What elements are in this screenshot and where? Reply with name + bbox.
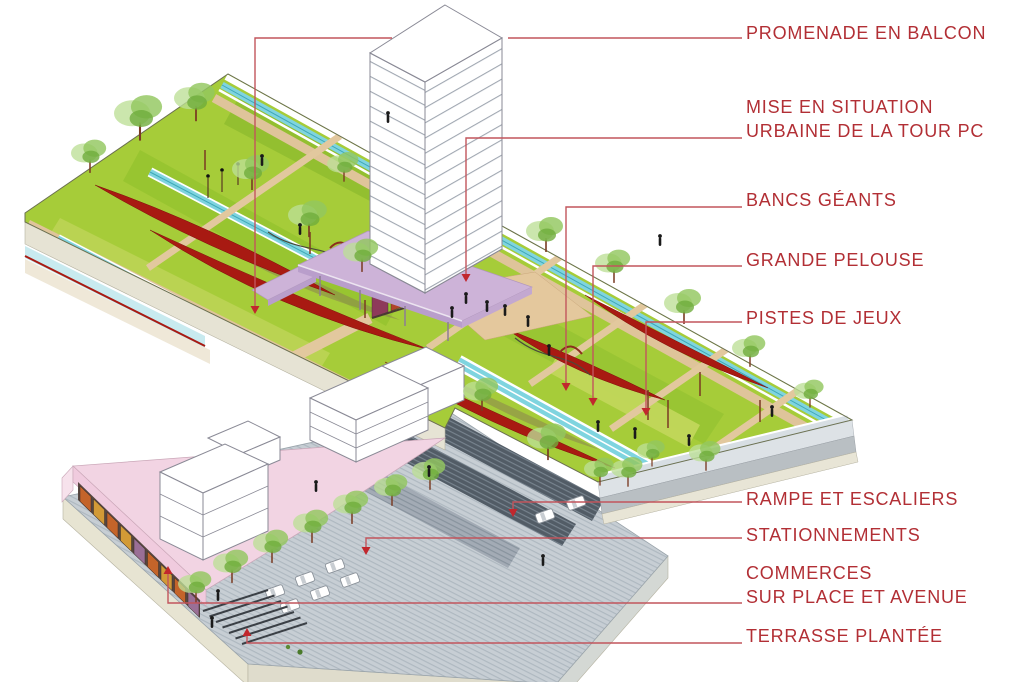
label-text: PISTES DE JEUX	[746, 308, 902, 328]
label-mise-en-situation-urbaine: MISE EN SITUATION URBAINE DE LA TOUR PC	[746, 95, 984, 143]
label-pistes-de-jeux: PISTES DE JEUX	[746, 306, 902, 330]
axonometric-diagram-page: PROMENADE EN BALCON MISE EN SITUATION UR…	[0, 0, 1024, 682]
label-bancs-geants: BANCS GÉANTS	[746, 188, 897, 212]
label-commerces: COMMERCES SUR PLACE ET AVENUE	[746, 561, 968, 609]
label-text: SUR PLACE ET AVENUE	[746, 585, 968, 609]
tower	[370, 5, 502, 293]
label-text: STATIONNEMENTS	[746, 525, 921, 545]
label-text: COMMERCES	[746, 563, 872, 583]
label-terrasse-plantee: TERRASSE PLANTÉE	[746, 624, 943, 648]
label-text: PROMENADE EN BALCON	[746, 23, 986, 43]
label-rampe-et-escaliers: RAMPE ET ESCALIERS	[746, 487, 958, 511]
label-text: GRANDE PELOUSE	[746, 250, 924, 270]
label-stationnements: STATIONNEMENTS	[746, 523, 921, 547]
label-grande-pelouse: GRANDE PELOUSE	[746, 248, 924, 272]
label-promenade-en-balcon: PROMENADE EN BALCON	[746, 21, 986, 45]
label-text: MISE EN SITUATION	[746, 97, 933, 117]
label-text: URBAINE DE LA TOUR PC	[746, 119, 984, 143]
label-text: BANCS GÉANTS	[746, 190, 897, 210]
label-text: TERRASSE PLANTÉE	[746, 626, 943, 646]
label-text: RAMPE ET ESCALIERS	[746, 489, 958, 509]
